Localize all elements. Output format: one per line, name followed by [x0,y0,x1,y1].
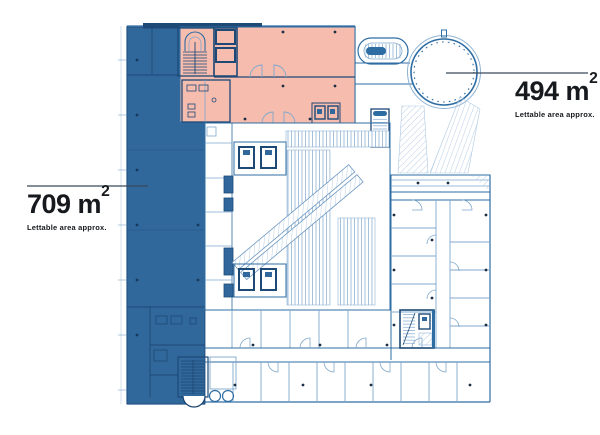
pink-area-caption: Lettable area approx. [515,110,597,119]
floor-plan-canvas: 709 m2 Lettable area approx. 494 m2 Lett… [0,0,600,435]
oval-stair [358,38,408,64]
blue-area-label: 709 m2 Lettable area approx. [27,191,109,232]
hatched-band-vertical [398,106,428,173]
striped-block-right [338,218,375,305]
blue-area-caption: Lettable area approx. [27,223,109,232]
atrium-core [205,123,390,310]
circular-tower [355,30,481,173]
elevator-bank-upper [234,142,286,175]
elevator-bank-lower [234,264,286,297]
striped-band-top [286,131,389,147]
pink-area-label: 494 m2 Lettable area approx. [515,78,597,119]
stair-block-southeast [400,310,435,348]
pink-area-value: 494 m2 [515,78,597,105]
blue-area-value: 709 m2 [27,191,109,218]
site-boundary-ticks [118,26,126,404]
bottom-rooms [205,310,490,402]
lettable-area-pink [180,27,355,123]
